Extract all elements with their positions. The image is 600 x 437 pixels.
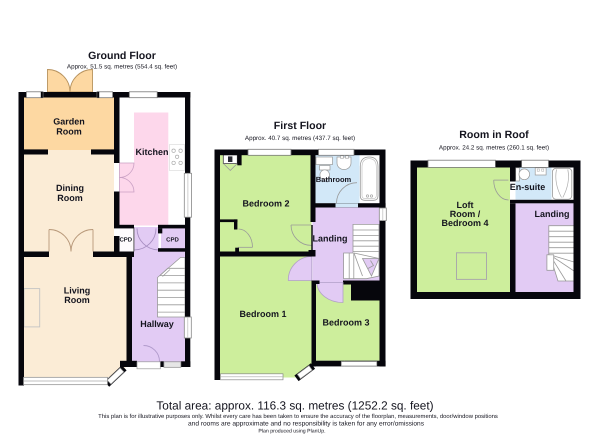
svg-text:Room: Room — [57, 193, 83, 203]
svg-text:Plan produced using PlanUp.: Plan produced using PlanUp. — [258, 429, 325, 435]
svg-text:Bedroom 4: Bedroom 4 — [441, 218, 488, 228]
svg-text:This plan is for illustrative: This plan is for illustrative purposes o… — [98, 413, 498, 420]
svg-text:Bedroom 2: Bedroom 2 — [242, 199, 289, 209]
svg-text:Room: Room — [56, 126, 82, 136]
svg-text:Total area: approx. 116.3 sq.: Total area: approx. 116.3 sq. metres (12… — [156, 399, 433, 413]
svg-text:Bathroom: Bathroom — [316, 175, 352, 184]
svg-text:Room in Roof: Room in Roof — [459, 129, 529, 141]
svg-text:En-suite: En-suite — [510, 182, 546, 192]
svg-text:and rooms are approximate and: and rooms are approximate and no respons… — [188, 420, 425, 427]
svg-text:Garden: Garden — [53, 117, 85, 127]
svg-text:Bedroom 3: Bedroom 3 — [322, 318, 369, 328]
svg-text:First Floor: First Floor — [274, 120, 326, 132]
svg-text:CPD: CPD — [119, 237, 132, 244]
svg-text:Ground Floor: Ground Floor — [88, 50, 156, 62]
svg-text:Approx. 24.2 sq. metres (260.1: Approx. 24.2 sq. metres (260.1 sq. feet) — [439, 144, 549, 151]
svg-text:Approx. 40.7 sq. metres (437.7: Approx. 40.7 sq. metres (437.7 sq. feet) — [245, 135, 355, 142]
svg-text:Landing: Landing — [535, 209, 570, 219]
svg-text:Kitchen: Kitchen — [135, 147, 168, 157]
svg-text:Hallway: Hallway — [140, 319, 174, 329]
svg-text:Room: Room — [64, 295, 90, 305]
svg-text:Dining: Dining — [56, 183, 84, 193]
svg-text:Landing: Landing — [313, 234, 348, 244]
svg-text:CPD: CPD — [166, 237, 179, 244]
svg-text:Bedroom 1: Bedroom 1 — [239, 309, 286, 319]
svg-text:Approx. 51.5 sq. metres (554.4: Approx. 51.5 sq. metres (554.4 sq. feet) — [67, 64, 177, 71]
svg-text:Living: Living — [64, 285, 91, 295]
